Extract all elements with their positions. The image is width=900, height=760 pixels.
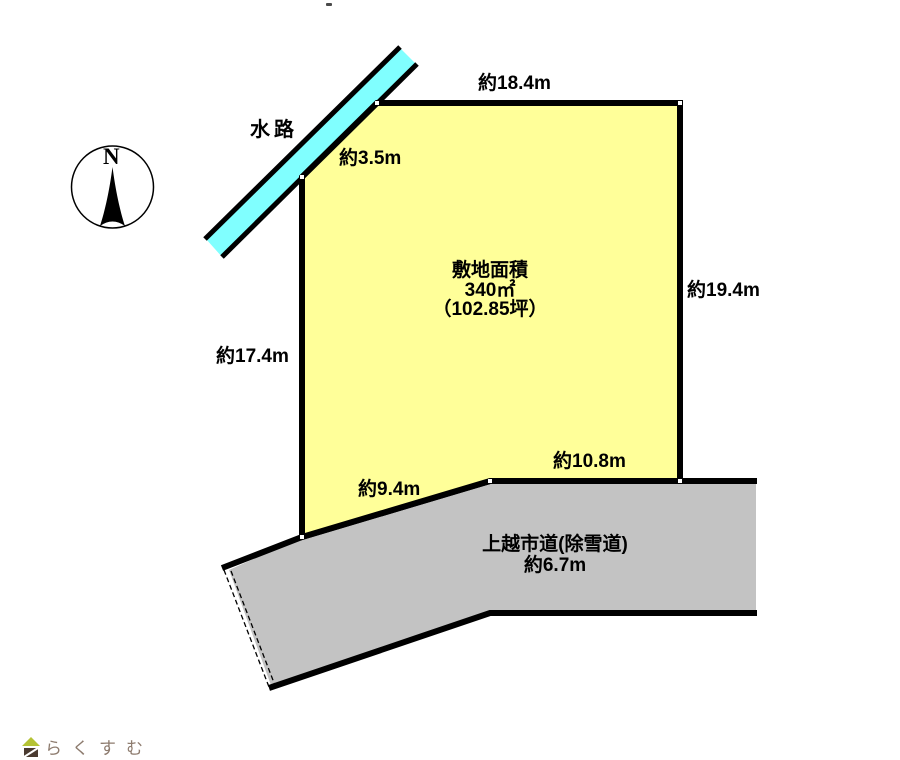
- site-plan-diagram: 約18.4m 約19.4m 約17.4m 約3.5m 約9.4m 約10.8m …: [0, 0, 900, 760]
- waterway-label: 水路: [250, 120, 298, 140]
- house-icon: [21, 736, 41, 758]
- plot-area-tsubo: （102.85坪）: [379, 300, 601, 320]
- site-plan-shapes: [0, 0, 900, 760]
- plot-area-text: 敷地面積 340㎡ （102.85坪）: [379, 261, 601, 320]
- compass-north-label: N: [103, 145, 120, 168]
- measurement-bottom-left: 約9.4m: [358, 480, 420, 499]
- plot-area-title: 敷地面積: [379, 261, 601, 281]
- road-width: 約6.7m: [455, 555, 655, 576]
- measurement-right: 約19.4m: [687, 281, 760, 300]
- road-name: 上越市道(除雪道): [455, 534, 655, 555]
- stray-mark: [326, 3, 332, 6]
- plot-area-value: 340㎡: [379, 281, 601, 301]
- measurement-left: 約17.4m: [216, 347, 289, 366]
- measurement-upper-left: 約3.5m: [339, 149, 401, 168]
- measurement-top: 約18.4m: [478, 74, 551, 93]
- measurement-bottom: 約10.8m: [553, 452, 626, 471]
- road-text: 上越市道(除雪道) 約6.7m: [455, 534, 655, 576]
- brand-name: らくすむ: [45, 740, 153, 757]
